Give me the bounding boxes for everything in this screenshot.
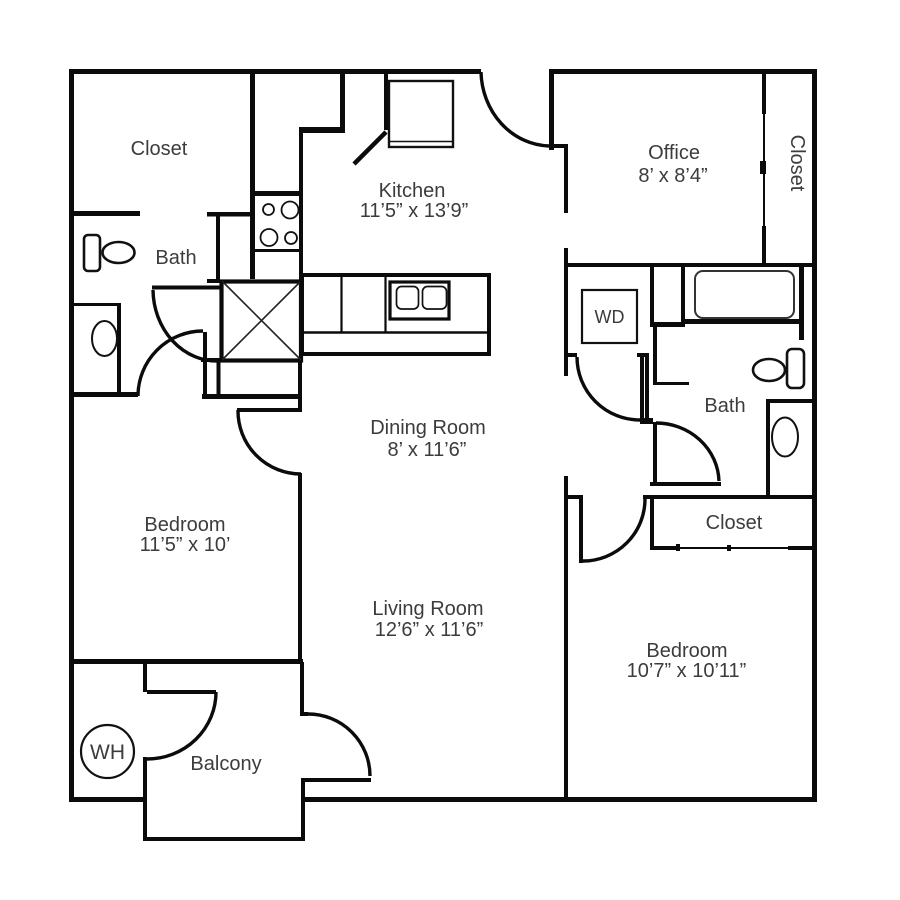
svg-text:12’6” x 11’6”: 12’6” x 11’6” xyxy=(375,619,484,641)
svg-text:Balcony: Balcony xyxy=(190,753,261,775)
svg-text:Dining Room: Dining Room xyxy=(370,417,486,439)
svg-text:Office: Office xyxy=(648,142,700,164)
svg-text:Kitchen: Kitchen xyxy=(379,180,446,202)
svg-text:WD: WD xyxy=(595,307,625,327)
svg-text:8’ x 8’4”: 8’ x 8’4” xyxy=(638,165,707,187)
svg-text:11’5” x 10’: 11’5” x 10’ xyxy=(140,534,231,556)
svg-text:8’ x 11’6”: 8’ x 11’6” xyxy=(388,439,467,461)
svg-text:WH: WH xyxy=(90,741,125,764)
svg-text:Bedroom: Bedroom xyxy=(646,640,727,662)
svg-text:Closet: Closet xyxy=(706,512,763,534)
svg-text:Closet: Closet xyxy=(786,135,808,192)
svg-text:10’7” x 10’11”: 10’7” x 10’11” xyxy=(627,660,747,682)
svg-text:Bedroom: Bedroom xyxy=(144,514,225,536)
svg-text:Closet: Closet xyxy=(131,138,188,160)
svg-text:11’5” x 13’9”: 11’5” x 13’9” xyxy=(360,200,469,222)
svg-text:Bath: Bath xyxy=(155,247,196,269)
svg-text:Living Room: Living Room xyxy=(372,598,483,620)
svg-text:Bath: Bath xyxy=(704,395,745,417)
